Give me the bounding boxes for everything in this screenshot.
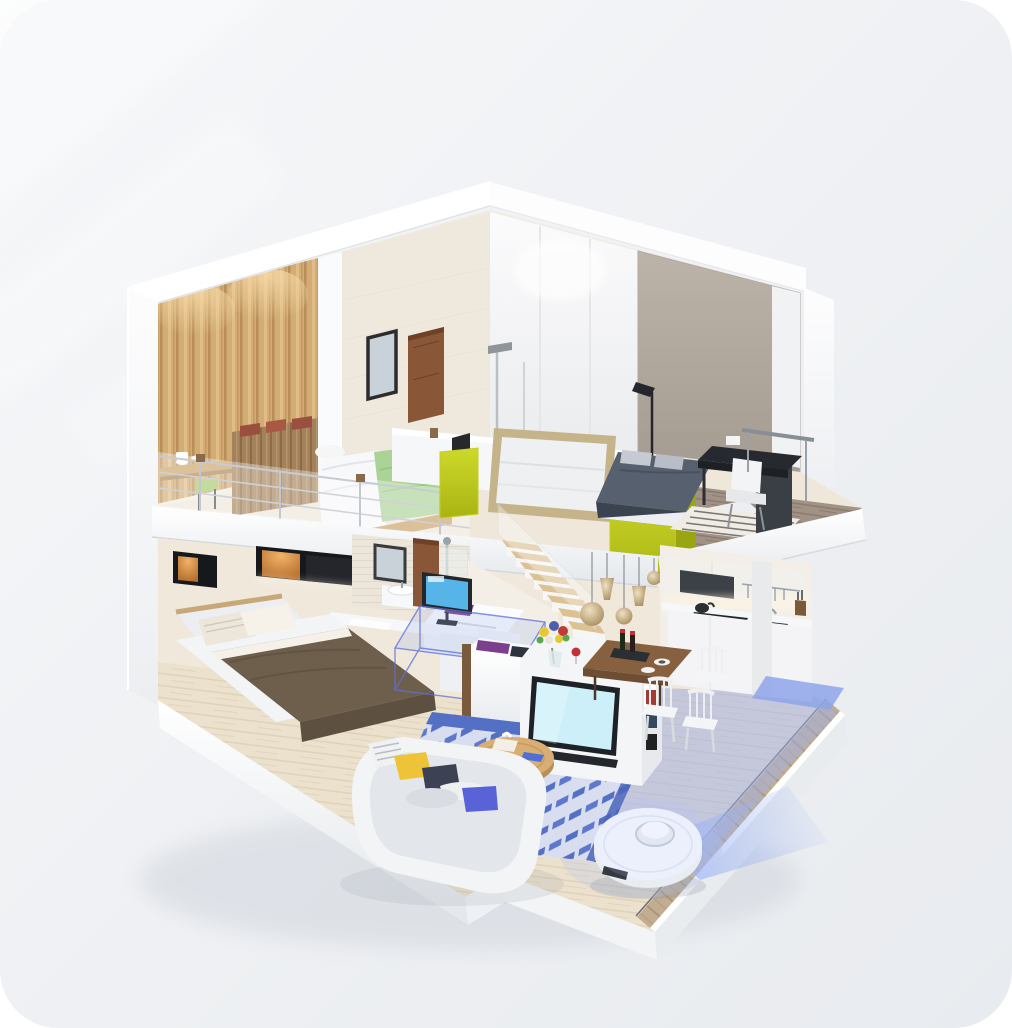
- pendant-globe: [616, 608, 633, 625]
- lit-compartment: [262, 550, 300, 580]
- bathroom-mirror: [375, 545, 405, 582]
- wood-post-cap: [356, 474, 365, 482]
- cushion-gray: [406, 788, 458, 808]
- scan-tint: [594, 808, 702, 880]
- apartment-cutaway-render: [0, 0, 1012, 1028]
- wine-glass: [572, 648, 581, 657]
- wall-column: [318, 252, 342, 468]
- desk-books: [726, 436, 740, 445]
- hall-wall: [342, 212, 490, 462]
- board-face: [496, 437, 607, 512]
- left-outer-wall: [128, 287, 158, 705]
- wall-mirror: [368, 331, 396, 399]
- wardrobe-panels: [490, 212, 638, 452]
- sliding-panel: [772, 286, 800, 468]
- plate: [641, 667, 655, 673]
- wood-post-cap: [196, 454, 205, 462]
- kitchen: [660, 545, 812, 702]
- right-outer-wall: [804, 288, 834, 508]
- white-curved-sofa: [340, 737, 564, 906]
- lit-compartment: [178, 556, 198, 582]
- cushion-violet: [462, 786, 498, 812]
- glass-vase: [548, 650, 562, 668]
- pendant-globe: [580, 602, 604, 626]
- wood-door: [408, 327, 444, 423]
- pendant-globe: [647, 571, 661, 585]
